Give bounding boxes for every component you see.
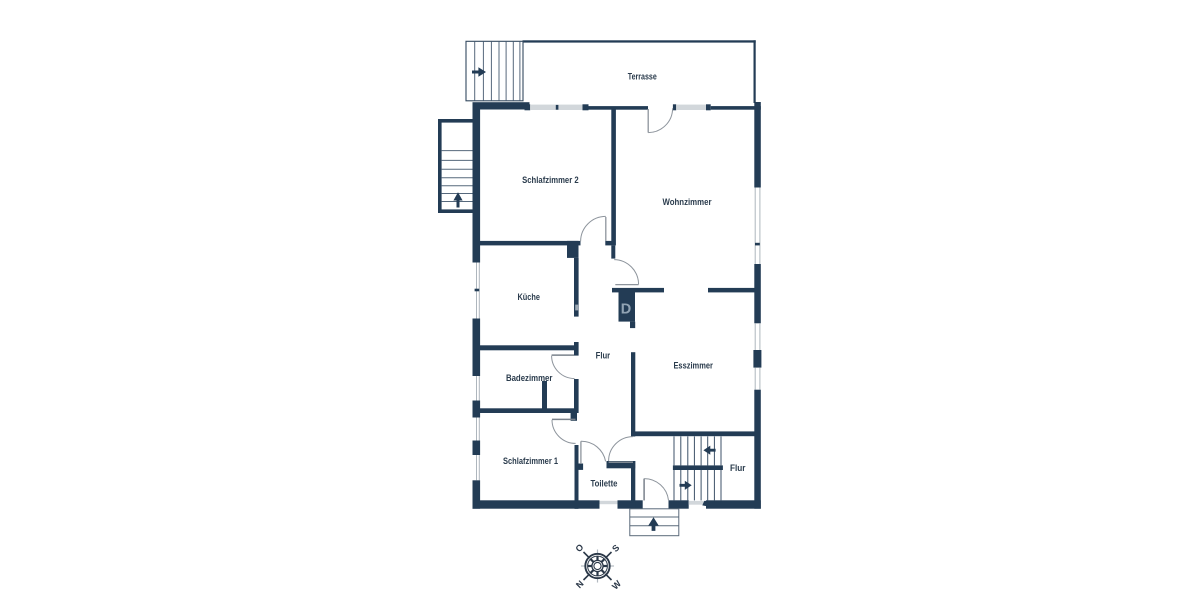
svg-text:Flur: Flur — [596, 351, 611, 361]
svg-text:Schlafzimmer 2: Schlafzimmer 2 — [522, 175, 579, 185]
svg-text:Toilette: Toilette — [591, 479, 618, 489]
svg-text:D: D — [621, 301, 631, 317]
svg-text:Schlafzimmer 1: Schlafzimmer 1 — [503, 456, 558, 466]
svg-text:Wohnzimmer: Wohnzimmer — [663, 197, 712, 207]
svg-text:Küche: Küche — [517, 292, 540, 302]
svg-text:Flur: Flur — [730, 463, 746, 473]
svg-text:Terrasse: Terrasse — [628, 72, 657, 82]
svg-text:Badezimmer: Badezimmer — [506, 373, 553, 383]
svg-text:Esszimmer: Esszimmer — [673, 360, 713, 370]
